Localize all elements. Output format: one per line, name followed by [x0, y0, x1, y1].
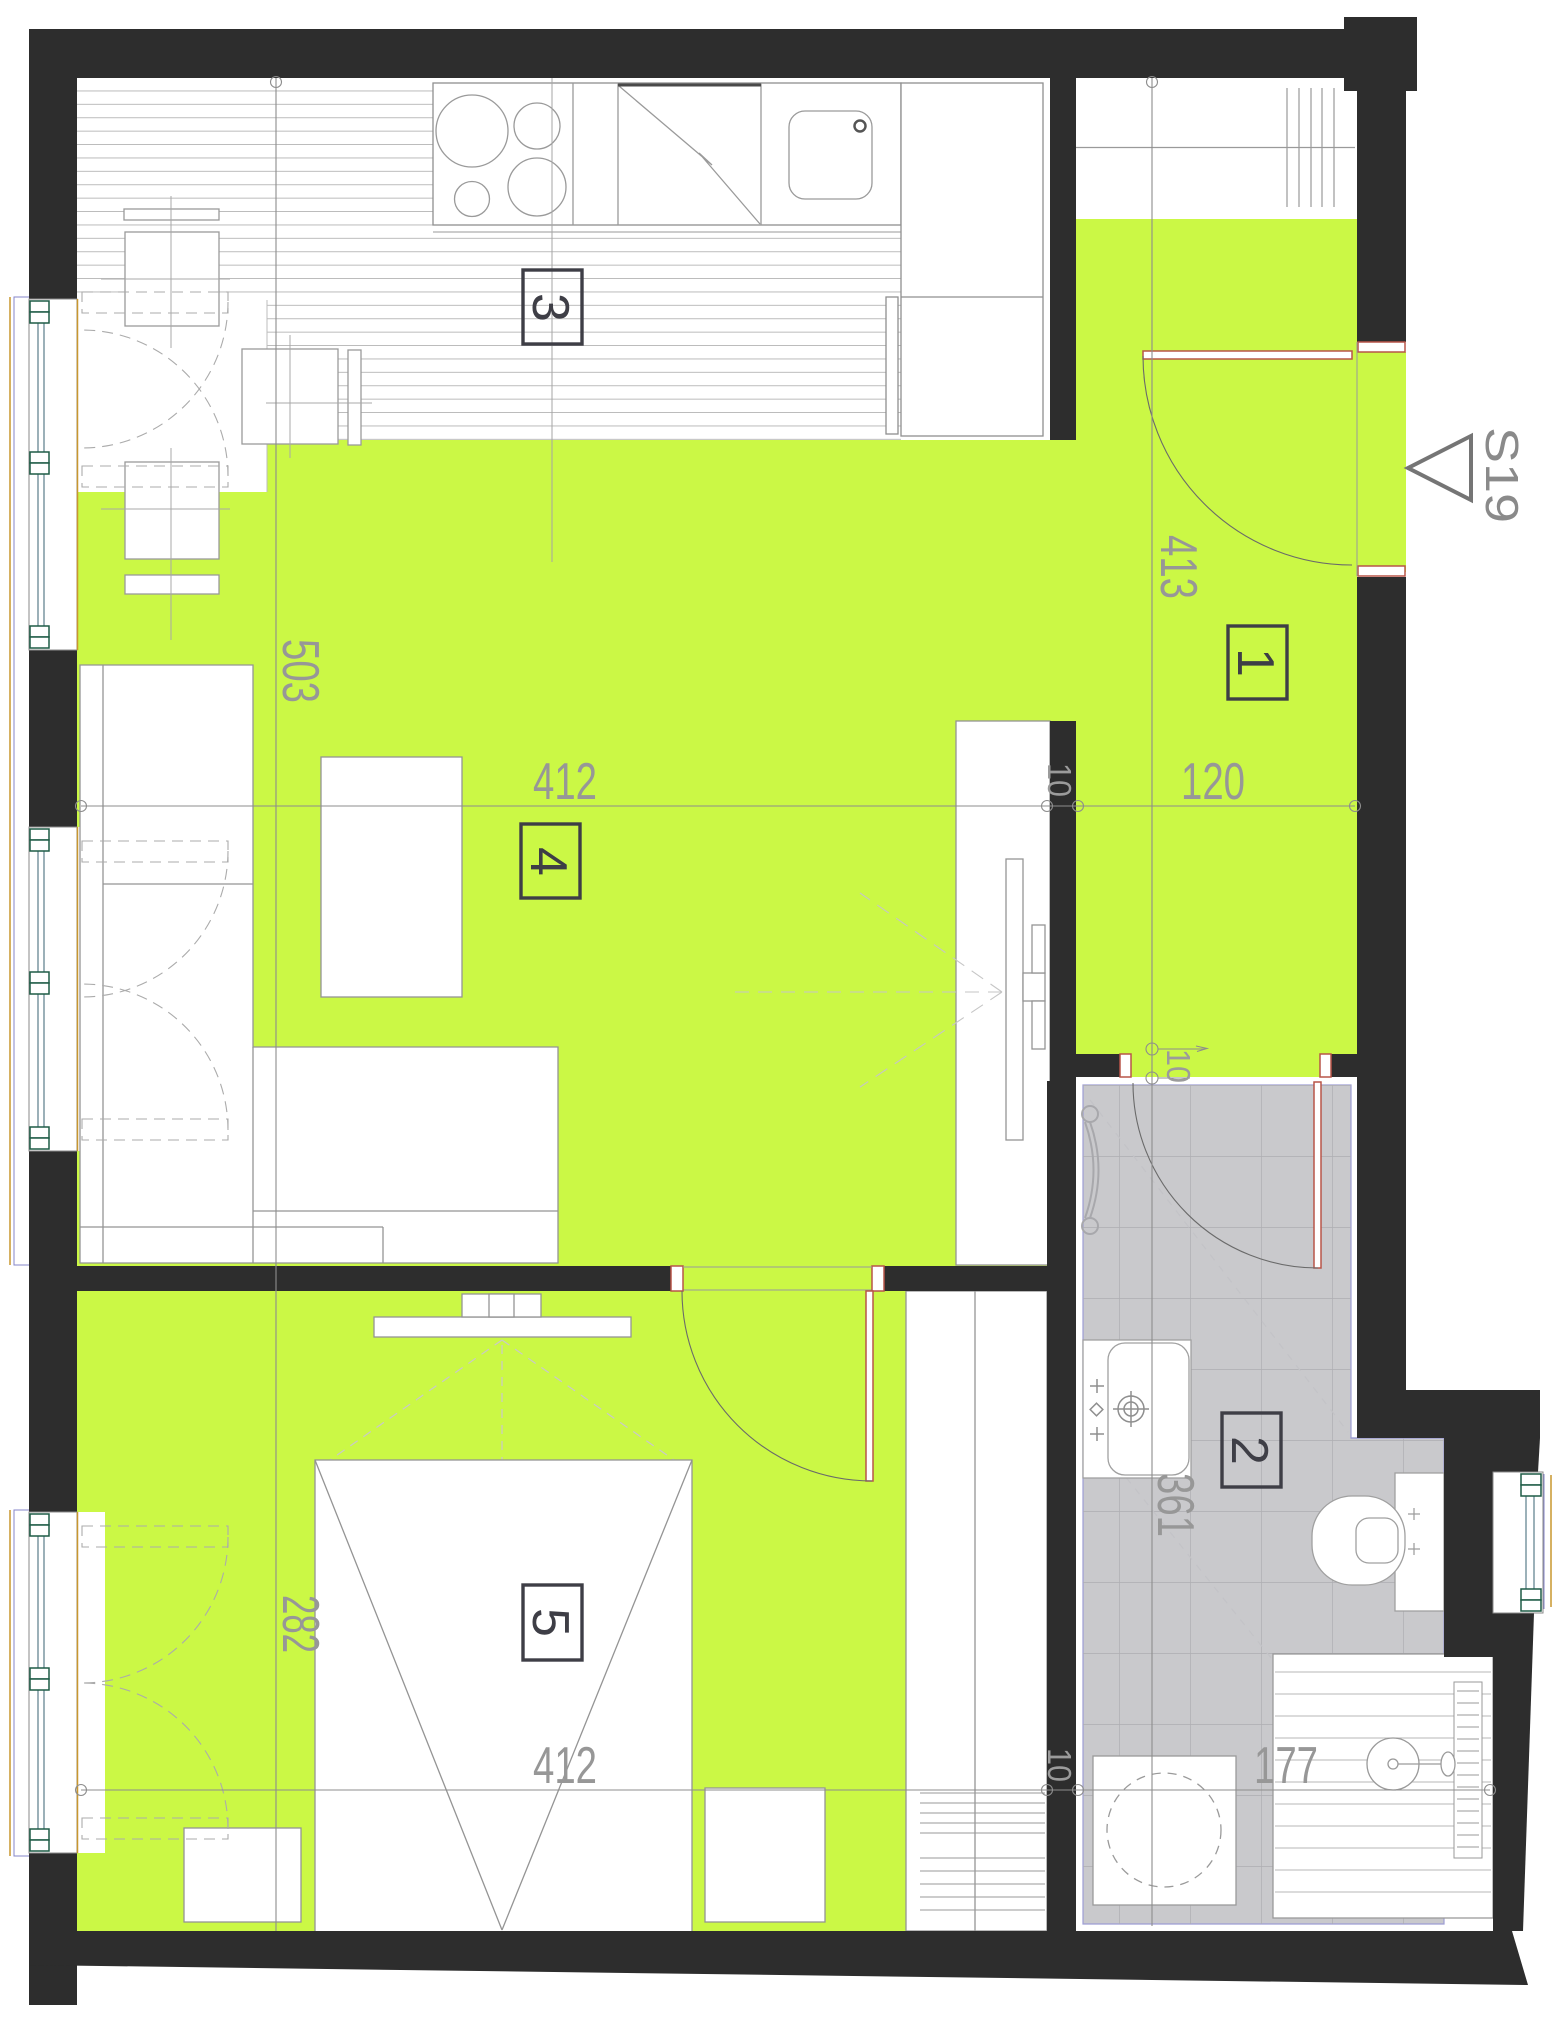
- svg-text:1: 1: [1226, 648, 1284, 677]
- svg-text:3: 3: [521, 293, 579, 322]
- svg-text:412: 412: [533, 1737, 597, 1795]
- svg-text:503: 503: [271, 639, 329, 703]
- svg-text:S19: S19: [1476, 427, 1528, 523]
- svg-text:412: 412: [533, 753, 597, 811]
- svg-text:120: 120: [1181, 753, 1245, 811]
- svg-text:2: 2: [1220, 1436, 1278, 1465]
- svg-text:413: 413: [1149, 535, 1207, 599]
- svg-text:282: 282: [271, 1595, 329, 1653]
- svg-text:10: 10: [1041, 1748, 1078, 1782]
- svg-text:10: 10: [1041, 763, 1078, 797]
- svg-text:10: 10: [1160, 1049, 1197, 1083]
- svg-text:5: 5: [521, 1608, 579, 1637]
- svg-text:177: 177: [1254, 1737, 1318, 1795]
- svg-text:361: 361: [1146, 1473, 1204, 1537]
- svg-text:4: 4: [519, 847, 577, 876]
